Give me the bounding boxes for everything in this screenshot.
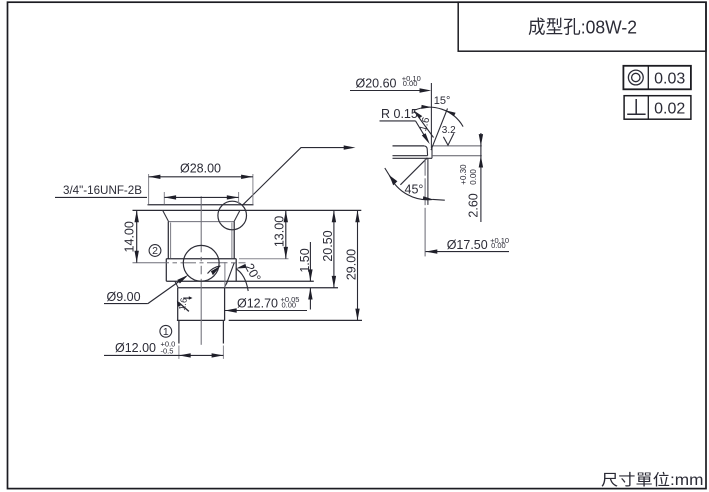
svg-text:成型孔:08W-2: 成型孔:08W-2 <box>528 17 637 38</box>
svg-text:0.00: 0.00 <box>469 169 478 185</box>
svg-text:Ø20.60: Ø20.60 <box>356 77 397 91</box>
svg-text:Ø9.00: Ø9.00 <box>107 290 141 304</box>
svg-text:1.6: 1.6 <box>177 297 189 311</box>
svg-text:14.00: 14.00 <box>123 221 137 252</box>
svg-text:3.2: 3.2 <box>442 125 456 136</box>
svg-text:1: 1 <box>163 326 169 338</box>
svg-text:20.50: 20.50 <box>321 230 335 261</box>
svg-text:0.00: 0.00 <box>491 241 506 250</box>
svg-text:尺寸單位:mm: 尺寸單位:mm <box>601 471 704 489</box>
svg-text:29.00: 29.00 <box>345 249 359 280</box>
svg-text:1.50: 1.50 <box>298 248 312 272</box>
svg-text:2.60: 2.60 <box>466 193 480 217</box>
svg-text:0.00: 0.00 <box>282 301 297 310</box>
svg-text:2: 2 <box>152 245 158 257</box>
svg-text:Ø17.50: Ø17.50 <box>447 238 488 252</box>
svg-text:0.00: 0.00 <box>403 79 418 88</box>
svg-text:0.02: 0.02 <box>654 101 685 118</box>
svg-text:Ø12.70: Ø12.70 <box>237 297 278 311</box>
svg-text:0.03: 0.03 <box>654 71 685 88</box>
svg-text:45°: 45° <box>405 183 424 197</box>
svg-text:+0.30: +0.30 <box>459 164 468 185</box>
svg-text:3/4"-16UNF-2B: 3/4"-16UNF-2B <box>63 183 142 197</box>
svg-text:13.00: 13.00 <box>273 216 287 247</box>
svg-text:R 0.15: R 0.15 <box>381 107 418 121</box>
svg-text:Ø12.00: Ø12.00 <box>115 341 156 355</box>
svg-text:Ø28.00: Ø28.00 <box>180 162 221 176</box>
svg-text:-0.5: -0.5 <box>161 346 174 355</box>
svg-text:15°: 15° <box>434 95 451 107</box>
